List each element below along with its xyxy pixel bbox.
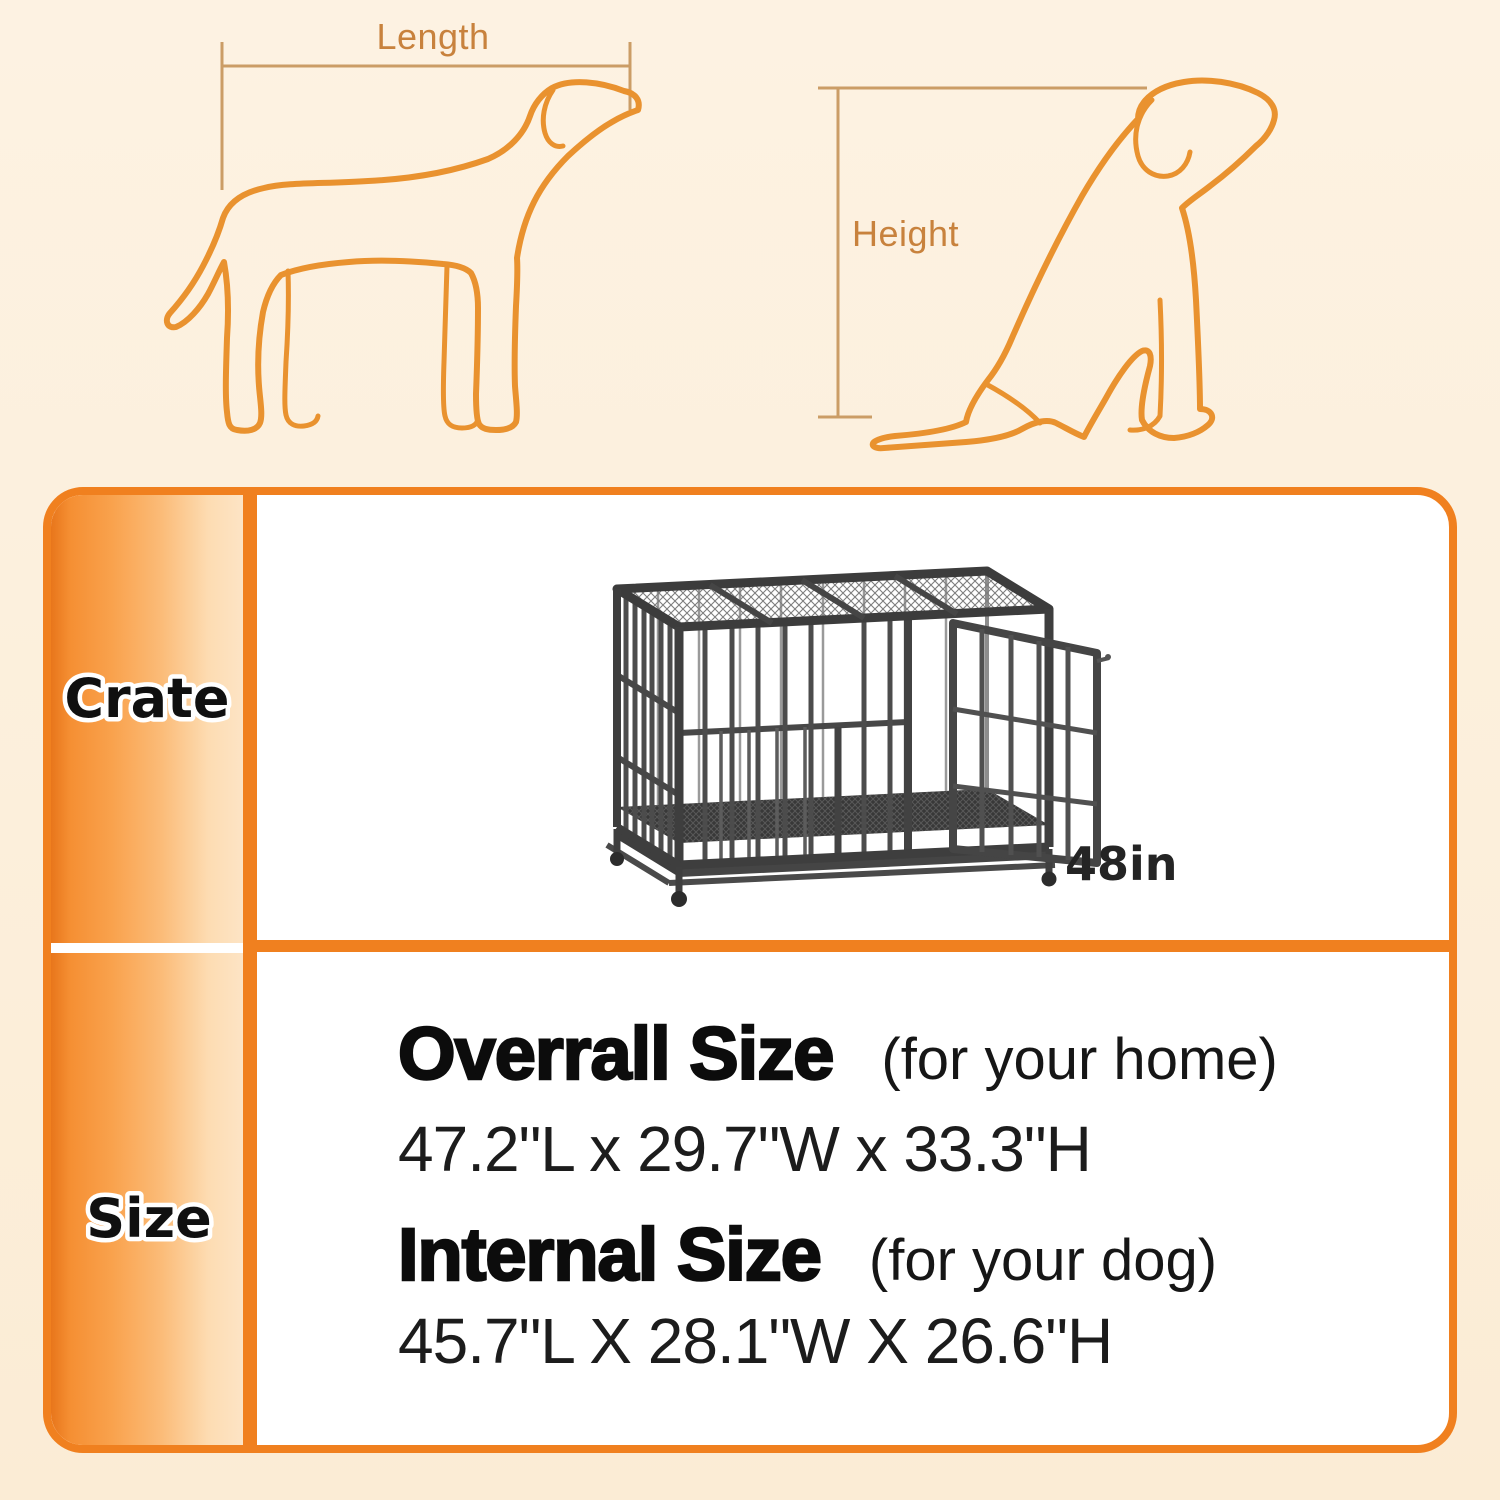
- internal-size-note: (for your dog): [869, 1228, 1217, 1293]
- crate-size-label: 48in: [1065, 841, 1178, 887]
- standing-dog-outline-icon: [167, 82, 639, 431]
- internal-size-heading: Internal Size(for your dog): [398, 1218, 1217, 1292]
- crate-floor-tray: [607, 789, 1055, 883]
- overall-size-note: (for your home): [881, 1027, 1277, 1092]
- crate-row-header: Crate: [51, 495, 243, 943]
- size-table: Crate Size: [43, 487, 1457, 1453]
- crate-image: [591, 565, 1111, 915]
- internal-size-dimensions: 45.7"L X 28.1"W X 26.6"H: [398, 1309, 1112, 1373]
- length-measure-lines: [222, 42, 630, 190]
- overall-size-title: Overrall Size: [398, 1012, 833, 1095]
- measurement-guide-graphic: [0, 0, 1500, 470]
- size-row-header-label: Size: [86, 1187, 211, 1250]
- length-label: Length: [348, 16, 518, 58]
- content-row-divider: [257, 940, 1449, 952]
- crate-top-mesh: [617, 571, 1049, 627]
- height-label: Height: [852, 213, 1032, 255]
- crate-row-header-label: Crate: [64, 667, 229, 730]
- internal-size-title: Internal Size: [398, 1213, 821, 1296]
- dog-crate-size-infographic: { "canvas": {"width": 1500, "height": 15…: [0, 0, 1500, 1500]
- sitting-dog-outline-icon: [873, 80, 1275, 448]
- header-row-divider: [51, 943, 243, 953]
- table-vertical-border: [243, 495, 257, 1445]
- overall-size-dimensions: 47.2"L x 29.7"W x 33.3"H: [398, 1117, 1091, 1181]
- size-row-header: Size: [51, 953, 243, 1445]
- overall-size-heading: Overrall Size(for your home): [398, 1017, 1278, 1091]
